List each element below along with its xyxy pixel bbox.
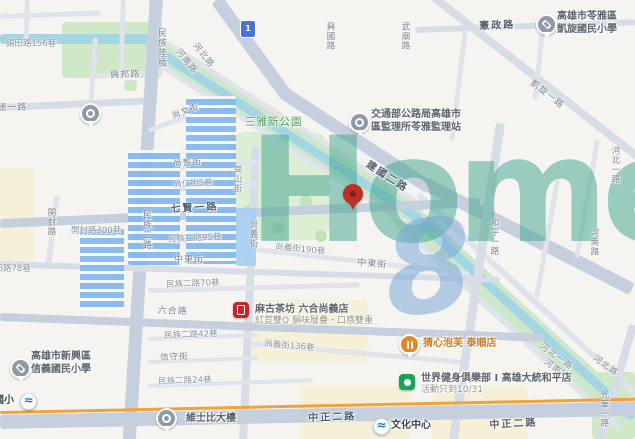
place-pin-icon[interactable] bbox=[80, 103, 101, 124]
commercial-zone bbox=[0, 168, 34, 264]
street-label: 民族二路 bbox=[140, 210, 153, 250]
metro-icon[interactable] bbox=[20, 393, 37, 410]
street-label: 武廟路 bbox=[399, 22, 411, 51]
poi-label[interactable]: 麻古茶坊 六合尚義店紅荳雙Q 韻味層疊・口感雙重 bbox=[255, 303, 373, 328]
street-label: 河北一路 bbox=[609, 146, 621, 184]
street-label: 民族二路70巷 bbox=[166, 276, 220, 290]
street-label: 尚仁街5巷 bbox=[173, 176, 213, 190]
poi-label[interactable]: 世界健身俱樂部 I 高雄大統和平店活動只到10/31 bbox=[421, 372, 572, 397]
highway-shield-icon: 1 bbox=[240, 20, 256, 38]
street-label: 和平一路 bbox=[488, 218, 500, 256]
metro-icon[interactable] bbox=[373, 418, 390, 435]
poi-name[interactable]: 交通部公路局高雄市 bbox=[371, 109, 461, 120]
poi-label[interactable]: 高雄市新興區信義國民小學 bbox=[31, 350, 91, 376]
poi-label[interactable]: 交通部公路局高雄市區監理所苓雅監理站 bbox=[371, 108, 461, 134]
poi-name[interactable]: 世界健身俱樂部 I 高雄大統和平店 bbox=[421, 373, 572, 384]
bubble-tea-logo-icon[interactable] bbox=[233, 302, 249, 318]
street-label: 尚義街 bbox=[247, 220, 259, 249]
street-label: 開封路300巷 bbox=[71, 224, 121, 236]
street-label: 民族二路42巷 bbox=[164, 327, 218, 341]
street-label: 憲政路 bbox=[479, 16, 516, 32]
poi-name-line2[interactable]: 區監理所苓雅監理站 bbox=[371, 121, 461, 134]
street-label: 民族陸橋 bbox=[155, 28, 168, 68]
government-icon[interactable] bbox=[349, 112, 370, 133]
watermark-8: 8 bbox=[378, 201, 480, 338]
street-label: 尚智街 bbox=[173, 156, 202, 169]
map-canvas[interactable]: Home 8 1 錦田路156巷興邦路八德一路民族陸橋河南路河北路興國路武廟路憲… bbox=[0, 0, 635, 439]
road bbox=[0, 11, 100, 19]
street-label: 民族二路24巷 bbox=[158, 373, 212, 387]
poi-subtext: 紅荳雙Q 韻味層疊・口感雙重 bbox=[255, 316, 373, 328]
poi-name[interactable]: 高雄市苓雅區 bbox=[557, 11, 617, 22]
street-label: 錦田路78巷 bbox=[0, 262, 31, 274]
park-area bbox=[124, 80, 137, 91]
street-label: 光華一路 bbox=[598, 390, 610, 428]
poi-label[interactable]: 信義國小 bbox=[0, 394, 14, 407]
poi-name-line2[interactable]: 凱旋國民小學 bbox=[557, 23, 617, 36]
poi-name-line2[interactable]: 信義國民小學 bbox=[31, 363, 91, 376]
street-label: 錦田路156巷 bbox=[6, 37, 56, 49]
gym-logo-icon[interactable] bbox=[399, 374, 415, 390]
school-icon[interactable] bbox=[10, 358, 31, 379]
watermark-building bbox=[80, 226, 124, 310]
street-label: 興國路 bbox=[324, 22, 336, 51]
poi-label[interactable]: 文化中心 bbox=[391, 419, 431, 432]
street-label: 中正二路 bbox=[489, 413, 538, 430]
street-label: 七賢一路 bbox=[170, 197, 219, 214]
street-label: 三雅新公園 bbox=[245, 114, 303, 129]
poi-name[interactable]: 信義國小 bbox=[0, 395, 14, 406]
poi-name[interactable]: 麻古茶坊 六合尚義店 bbox=[255, 304, 348, 315]
poi-name[interactable]: 文化中心 bbox=[391, 420, 431, 431]
poi-subtext: 活動只到10/31 bbox=[421, 385, 572, 397]
poi-name[interactable]: 猜心泡芙 泰順店 bbox=[423, 338, 496, 349]
street-label: 河南路 bbox=[588, 228, 600, 257]
street-label: 中東街 bbox=[357, 255, 388, 271]
poi-label[interactable]: 猜心泡芙 泰順店 bbox=[423, 337, 496, 350]
street-label: 信守街 bbox=[160, 350, 189, 363]
poi-label[interactable]: 維士比大樓 bbox=[186, 412, 236, 425]
poi-label[interactable]: 高雄市苓雅區凱旋國民小學 bbox=[557, 10, 617, 36]
map-pin[interactable] bbox=[343, 184, 363, 204]
street-label: 中東街 bbox=[174, 252, 204, 265]
school-icon[interactable] bbox=[536, 14, 557, 35]
street-label: 八德一路 bbox=[0, 100, 27, 114]
street-label: 崗山街 bbox=[231, 165, 243, 194]
street-label: 開封路 bbox=[45, 208, 57, 237]
street-label: 中正二路 bbox=[308, 407, 356, 424]
restaurant-icon[interactable] bbox=[399, 334, 420, 355]
poi-name[interactable]: 高雄市新興區 bbox=[31, 351, 91, 362]
building-pin-icon[interactable] bbox=[156, 408, 177, 429]
poi-name[interactable]: 維士比大樓 bbox=[186, 413, 236, 424]
street-label: 六合路 bbox=[158, 303, 188, 317]
street-label: 興邦路 bbox=[110, 66, 141, 81]
